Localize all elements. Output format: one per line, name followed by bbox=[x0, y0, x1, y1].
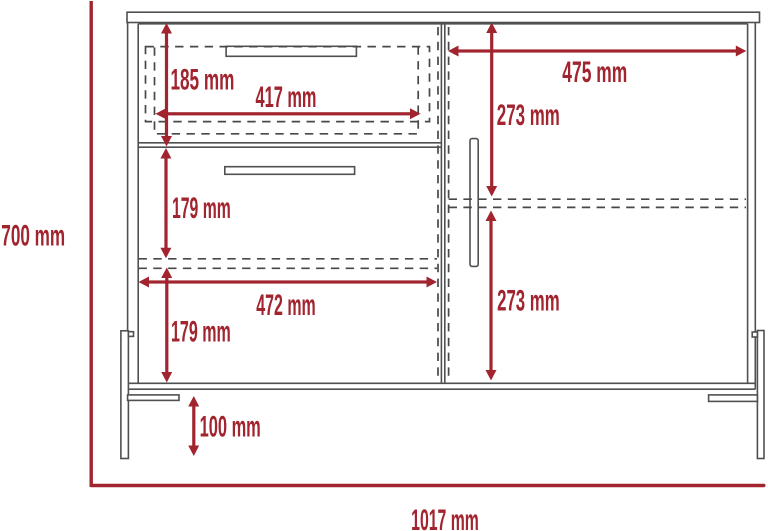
svg-text:472 mm: 472 mm bbox=[256, 289, 316, 322]
svg-text:179 mm: 179 mm bbox=[172, 192, 231, 225]
svg-text:273 mm: 273 mm bbox=[497, 284, 560, 317]
svg-text:179 mm: 179 mm bbox=[171, 316, 231, 349]
svg-text:475 mm: 475 mm bbox=[562, 56, 627, 89]
svg-text:185 mm: 185 mm bbox=[170, 64, 234, 97]
svg-text:1017 mm: 1017 mm bbox=[411, 504, 479, 531]
svg-text:700 mm: 700 mm bbox=[1, 219, 65, 252]
svg-text:417 mm: 417 mm bbox=[256, 81, 317, 114]
svg-text:100 mm: 100 mm bbox=[200, 410, 261, 443]
svg-text:273 mm: 273 mm bbox=[497, 99, 560, 132]
